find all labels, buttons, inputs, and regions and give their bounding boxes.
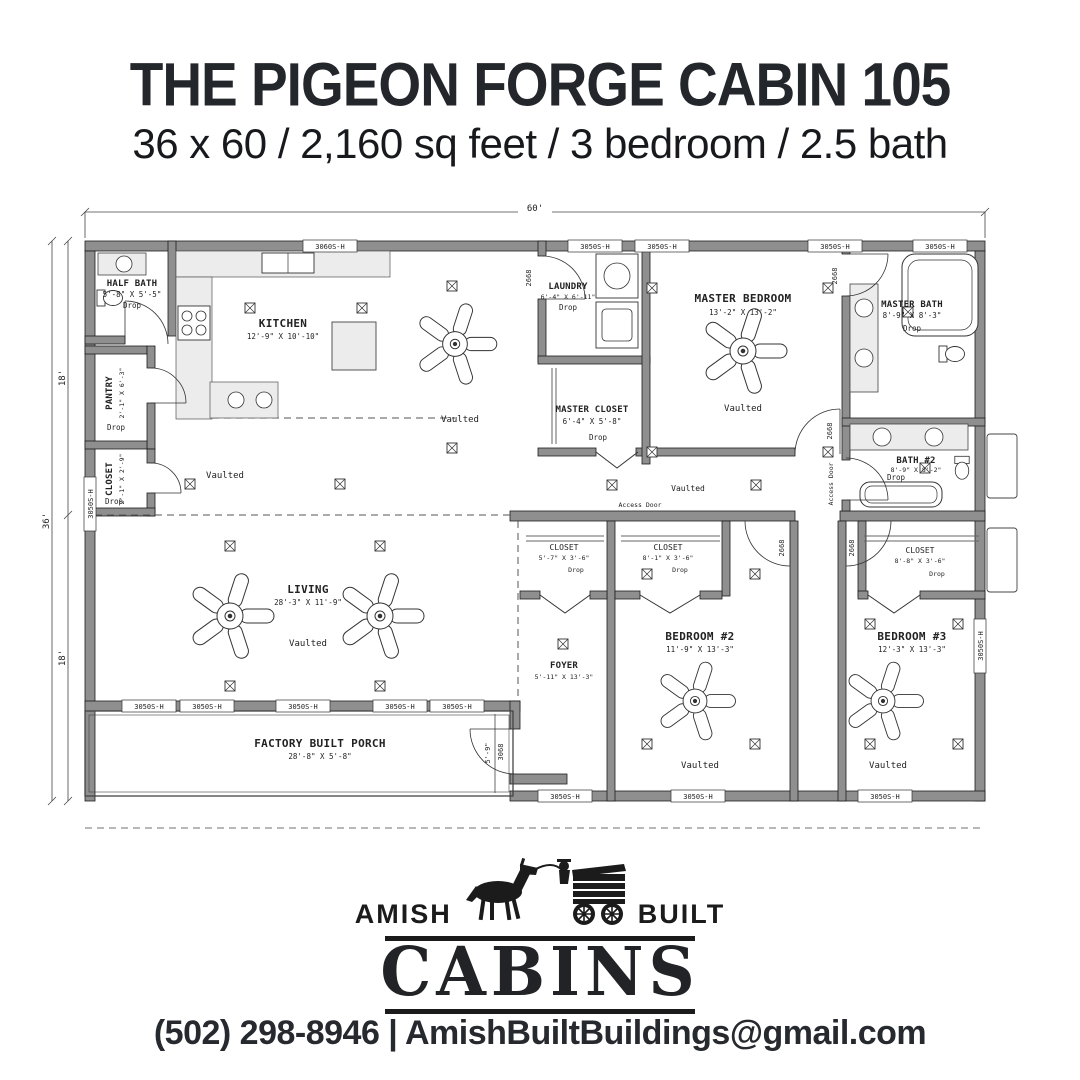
room-closet-left: CLOSET bbox=[105, 462, 115, 496]
room-porch: FACTORY BUILT PORCH bbox=[254, 737, 386, 750]
dim-porch: 5'-9" bbox=[484, 742, 492, 763]
room-master-closet-note: Drop bbox=[589, 433, 608, 442]
page-title: THE PIGEON FORGE CABIN 105 bbox=[0, 48, 1080, 120]
door-label: 2668 bbox=[848, 540, 856, 557]
room-master-bedroom: MASTER BEDROOM bbox=[695, 292, 792, 305]
room-foyer-closet-dims: 5'-7" X 3'-6" bbox=[539, 554, 590, 562]
window-label: 3050S-H bbox=[820, 243, 850, 251]
dim-height: 36' bbox=[42, 513, 52, 529]
room-master-closet: MASTER CLOSET bbox=[555, 405, 628, 415]
contact-info: (502) 298-8946 | AmishBuiltBuildings@gma… bbox=[0, 1014, 1080, 1053]
room-master-bath-dims: 8'-9" X 8'-3" bbox=[883, 311, 942, 320]
room-bed2-closet: CLOSET bbox=[654, 543, 683, 552]
window-label: 3060S-H bbox=[315, 243, 345, 251]
room-porch-dims: 28'-8" X 5'-8" bbox=[288, 752, 351, 761]
window-label: 3050S-H bbox=[288, 703, 318, 711]
room-living: LIVING bbox=[287, 583, 329, 596]
room-master-bedroom-dims: 13'-2" X 13'-2" bbox=[709, 308, 777, 317]
window-label: 3050S-H bbox=[647, 243, 677, 251]
room-bed3-closet: CLOSET bbox=[906, 546, 935, 555]
room-foyer-closet: CLOSET bbox=[550, 543, 579, 552]
room-bed2-closet-dims: 8'-1" X 3'-6" bbox=[643, 554, 694, 562]
room-master-bedroom-note: Vaulted bbox=[724, 404, 762, 414]
room-master-bath: MASTER BATH bbox=[881, 300, 943, 310]
window-label: 3050S-H bbox=[134, 703, 164, 711]
room-foyer-closet-note: Drop bbox=[568, 566, 584, 574]
vaulted-note-dining: Vaulted bbox=[441, 415, 479, 425]
laundry-fixtures bbox=[596, 254, 638, 348]
room-half-bath-dims: 5'-8" X 5'-5" bbox=[103, 290, 162, 299]
window-label: 3050S-H bbox=[683, 793, 713, 801]
door-label: 2668 bbox=[525, 270, 533, 287]
room-bed3-closet-dims: 8'-8" X 3'-6" bbox=[895, 557, 946, 565]
window-label: 3050S-H bbox=[550, 793, 580, 801]
room-kitchen: KITCHEN bbox=[259, 317, 307, 330]
room-foyer-dims: 5'-11" X 13'-3" bbox=[535, 673, 594, 681]
room-bedroom3-note: Vaulted bbox=[869, 761, 907, 771]
room-half-bath: HALF BATH bbox=[107, 279, 158, 289]
room-laundry-note: Drop bbox=[559, 303, 578, 312]
front-door-label: 3068 bbox=[497, 744, 505, 761]
vaulted-note-hall: Vaulted bbox=[671, 484, 705, 493]
poster: THE PIGEON FORGE CABIN 105 36 x 60 / 2,1… bbox=[0, 0, 1080, 1080]
room-pantry: PANTRY bbox=[105, 376, 115, 410]
room-master-bath-note: Drop bbox=[903, 324, 922, 333]
window-label: 3050S-H bbox=[87, 489, 95, 519]
room-living-dims: 28'-3" X 11'-9" bbox=[274, 598, 342, 607]
floor-plan-svg: 60' 36' 18' 18' 5'-9" bbox=[40, 196, 1040, 851]
window-label: 3050S-H bbox=[870, 793, 900, 801]
door-label: 2668 bbox=[831, 268, 839, 285]
window-label: 3050S-H bbox=[442, 703, 472, 711]
room-foyer: FOYER bbox=[550, 661, 578, 671]
room-laundry-dims: 6'-4" X 6'-11" bbox=[541, 293, 596, 301]
room-labels: HALF BATH 5'-8" X 5'-5" Drop PANTRY 2'-1… bbox=[103, 279, 947, 771]
ceiling-break-lines bbox=[95, 418, 518, 701]
page-subtitle: 36 x 60 / 2,160 sq feet / 3 bedroom / 2.… bbox=[0, 120, 1080, 168]
master-bath-fixtures bbox=[850, 254, 978, 392]
room-bed2-closet-note: Drop bbox=[672, 566, 688, 574]
room-master-closet-dims: 6'-4" X 5'-8" bbox=[563, 417, 622, 426]
room-kitchen-dims: 12'-9" X 10'-10" bbox=[247, 332, 319, 341]
logo-word-cabins: CABINS bbox=[380, 939, 699, 1006]
window-label: 3050S-H bbox=[925, 243, 955, 251]
access-door-label: Access Door bbox=[827, 462, 835, 505]
room-bath2: BATH #2 bbox=[896, 456, 935, 466]
logo-word-built: BUILT bbox=[638, 899, 725, 934]
room-half-bath-note: Drop bbox=[123, 301, 142, 310]
door-label: 2668 bbox=[778, 540, 786, 557]
window-label: 3050S-H bbox=[192, 703, 222, 711]
room-pantry-note: Drop bbox=[107, 423, 126, 432]
access-door-label: Access Door bbox=[618, 501, 661, 509]
vaulted-note-great-room: Vaulted bbox=[206, 471, 244, 481]
brand-logo: AMISH bbox=[0, 856, 1080, 1016]
room-living-note: Vaulted bbox=[289, 639, 327, 649]
dim-upper: 18' bbox=[58, 370, 68, 386]
dim-lower: 18' bbox=[58, 650, 68, 666]
room-bedroom2: BEDROOM #2 bbox=[665, 630, 734, 643]
door-label: 2668 bbox=[826, 423, 834, 440]
dim-width: 60' bbox=[527, 204, 543, 214]
window-label: 3050S-H bbox=[385, 703, 415, 711]
room-bath2-note: Drop bbox=[887, 473, 906, 482]
room-bedroom3-dims: 12'-3" X 13'-3" bbox=[878, 645, 946, 654]
room-laundry: LAUNDRY bbox=[548, 282, 588, 292]
room-pantry-dims: 2'-1" X 6'-3" bbox=[118, 368, 126, 419]
room-bedroom2-dims: 11'-9" X 13'-3" bbox=[666, 645, 734, 654]
room-closet-left-note: Drop bbox=[105, 497, 124, 506]
room-bed3-closet-note: Drop bbox=[929, 570, 945, 578]
room-bedroom2-note: Vaulted bbox=[681, 761, 719, 771]
floor-plan: 60' 36' 18' 18' 5'-9" bbox=[40, 196, 1040, 851]
logo-word-amish: AMISH bbox=[355, 899, 452, 934]
window-label: 3050S-H bbox=[977, 631, 985, 661]
window-label: 3050S-H bbox=[580, 243, 610, 251]
room-bedroom3: BEDROOM #3 bbox=[877, 630, 946, 643]
horse-wagon-icon bbox=[460, 856, 630, 934]
